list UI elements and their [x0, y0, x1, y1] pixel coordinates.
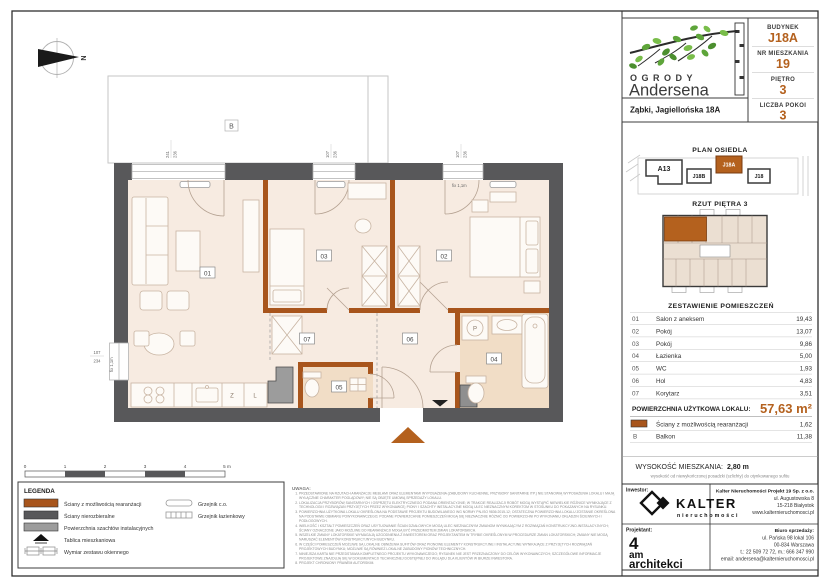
svg-text:5 m: 5 m: [223, 464, 231, 469]
svg-text:2: 2: [104, 464, 107, 469]
height-note: wysokość od niewykończonej posadzki (szl…: [651, 474, 790, 479]
svg-text:Łazienka: Łazienka: [656, 353, 682, 360]
svg-text:fix 1,1m: fix 1,1m: [452, 183, 467, 188]
svg-text:107: 107: [94, 350, 102, 355]
legend-swatch-structural: [24, 511, 58, 519]
svg-text:www.kalternieruchomosci.pl: www.kalternieruchomosci.pl: [752, 510, 814, 516]
total-area-label: POWIERZCHNIA UŻYTKOWA LOKALU:: [632, 404, 750, 413]
desk: [348, 183, 386, 199]
legend-ladder-radiator-icon: [166, 512, 192, 518]
svg-text:Powierzchnia szachtów instalac: Powierzchnia szachtów instalacyjnych: [64, 526, 154, 532]
svg-text:Pokój: Pokój: [656, 341, 672, 348]
double-bed: [470, 217, 540, 277]
floor-overview-highlighted-unit: [665, 217, 707, 241]
svg-text:Balkon: Balkon: [656, 434, 676, 441]
svg-text:0: 0: [24, 464, 27, 469]
svg-text:236: 236: [333, 150, 338, 158]
svg-text:Tablica mieszkaniowa: Tablica mieszkaniowa: [64, 538, 115, 544]
legend: LEGENDA Ściany z możliwością rearanżacji…: [18, 482, 284, 568]
stove-burner-icon: [144, 387, 152, 395]
svg-text:236: 236: [463, 150, 468, 158]
desk-chair: [355, 219, 371, 233]
svg-text:WC: WC: [656, 366, 667, 373]
washer-label: P: [473, 327, 477, 333]
svg-text:05: 05: [632, 366, 640, 373]
svg-text:04: 04: [632, 353, 640, 360]
bathroom-sink: [492, 316, 522, 334]
svg-text:J18: J18: [755, 174, 764, 180]
floor-overview-title: RZUT PIĘTRA 3: [692, 201, 748, 208]
note-item: POWIERZCHNIA UŻYTKOWA LOKALU OKREŚLONA N…: [299, 511, 618, 524]
svg-text:3,51: 3,51: [800, 390, 813, 397]
sales-office-label: Biuro sprzedaży:: [775, 528, 815, 534]
svg-text:J18B: J18B: [693, 174, 706, 180]
svg-text:19,43: 19,43: [796, 316, 812, 323]
svg-text:B: B: [633, 434, 637, 441]
svg-text:06: 06: [632, 378, 640, 385]
svg-text:1: 1: [64, 464, 67, 469]
birch-trunk-icon: [735, 23, 744, 95]
building-value: J18A: [768, 31, 798, 45]
svg-text:t.: 22 509 72 72, m.: 666 347: t.: 22 509 72 72, m.: 666 347 990: [740, 550, 814, 556]
investor-name: KALTER: [676, 496, 737, 511]
wardrobe: [398, 246, 420, 306]
coffee-table: [176, 231, 200, 271]
svg-text:fix 1,1m: fix 1,1m: [109, 357, 114, 372]
svg-text:Wymiar zestawu okiennego: Wymiar zestawu okiennego: [64, 550, 129, 556]
svg-text:ul. Augustowska 8: ul. Augustowska 8: [774, 496, 815, 502]
investor-label: Inwestor:: [626, 488, 649, 494]
dresser: [490, 192, 516, 202]
note-item: PRZEDSTAWIONE NA RZUTACH ARANŻACJE MEBLA…: [299, 492, 618, 501]
svg-text:236: 236: [173, 150, 178, 158]
svg-text:234: 234: [94, 359, 102, 364]
room-label-03: 03: [320, 254, 328, 261]
svg-text:Ściany nierozbieralne: Ściany nierozbieralne: [64, 512, 115, 520]
svg-text:15-218 Białystok: 15-218 Białystok: [777, 503, 814, 509]
svg-text:4: 4: [184, 464, 187, 469]
svg-text:Ściany z możliwością rearanżac: Ściany z możliwością rearanżacji: [656, 420, 748, 429]
svg-text:107: 107: [325, 150, 330, 158]
svg-text:Pokój: Pokój: [656, 328, 672, 335]
svg-text:02: 02: [632, 328, 640, 335]
svg-text:4,83: 4,83: [800, 378, 813, 385]
bathtub: [522, 314, 548, 388]
small-sink: [350, 378, 366, 391]
room-label-01: 01: [204, 271, 212, 278]
svg-text:architekci: architekci: [629, 559, 683, 571]
svg-text:Grzejnik c.o.: Grzejnik c.o.: [198, 502, 227, 508]
svg-text:01: 01: [632, 316, 640, 323]
room-label-07: 07: [303, 337, 311, 344]
floor-overview-core: [700, 245, 730, 257]
designer-label: Projektant:: [626, 528, 652, 534]
svg-text:email: andersena@kalternieruch: email: andersena@kalternieruchomosci.pl: [721, 557, 814, 563]
floor-plan: 01 02 03 04 05 06 07 Z L P 241 236 107: [90, 140, 563, 443]
investor-sub: nieruchomości: [677, 513, 739, 519]
project-address: Ząbki, Jagiellońska 18A: [630, 106, 720, 115]
tv-unit: [243, 200, 259, 272]
site-plan-title: PLAN OSIEDLA: [692, 147, 747, 154]
rooms-count-value: 3: [780, 109, 787, 123]
nightstand: [472, 200, 488, 212]
header-box: OGRODY Andersena Ząbki, Jagiellońska 18A…: [622, 18, 818, 123]
total-area-value: 57,63 m²: [760, 401, 813, 416]
legend-swatch-rearrangeable: [24, 499, 58, 507]
note-item: WIELKOŚĆ I KSZTAŁT POMIESZCZEŃ ORAZ USYT…: [299, 524, 618, 533]
dining-chair: [134, 331, 149, 346]
wardrobe: [362, 246, 387, 306]
armchair: [140, 291, 162, 310]
svg-text:Korytarz: Korytarz: [656, 390, 679, 397]
svg-text:11,38: 11,38: [797, 434, 813, 441]
dishwasher-label: Z: [230, 394, 234, 400]
apartment-number-value: 19: [776, 57, 790, 71]
kitchen-counter: [131, 383, 267, 407]
svg-text:00-834 Warszawa: 00-834 Warszawa: [774, 543, 814, 549]
dining-chair: [180, 331, 195, 346]
svg-text:241: 241: [165, 150, 170, 158]
armchair: [167, 291, 189, 310]
note-item: NINIEJSZA KARTA NIE PRZEDSTAWIA KOMPLETN…: [299, 552, 618, 561]
height-label: WYSOKOŚĆ MIESZKANIA:: [635, 462, 723, 471]
svg-text:J18A: J18A: [723, 163, 736, 169]
room-label-02: 02: [440, 254, 448, 261]
room-label-05: 05: [335, 385, 343, 392]
svg-text:Salon z aneksem: Salon z aneksem: [656, 316, 704, 323]
contact-box: Inwestor: KALTER nieruchomości Projektan…: [622, 484, 818, 571]
compass-north-label: N: [79, 55, 86, 60]
brand-line2: Andersena: [629, 82, 710, 100]
svg-text:Hol: Hol: [656, 378, 665, 385]
svg-text:Grzejnik łazienkowy: Grzejnik łazienkowy: [198, 514, 245, 520]
company-name: Kalter Nieruchomości Projekt 19 Sp. z o.…: [716, 489, 815, 495]
legend-radiator-icon: [166, 500, 192, 506]
svg-text:07: 07: [632, 390, 640, 397]
svg-text:9,86: 9,86: [800, 341, 813, 348]
svg-text:ul. Pańska 98 lokal 106: ul. Pańska 98 lokal 106: [762, 536, 814, 542]
room-label-06: 06: [406, 337, 414, 344]
svg-text:13,07: 13,07: [796, 328, 812, 335]
disclaimer-notes: UWAGA: PRZEDSTAWIONE NA RZUTACH ARANŻACJ…: [292, 486, 618, 570]
svg-text:107: 107: [455, 150, 460, 158]
legend-swatch-shaft: [24, 523, 58, 531]
note-item: LOKALIZACJA PRZYBORÓW SANITARNYCH I OSPR…: [299, 501, 618, 510]
kitchen-sink: [196, 388, 218, 402]
svg-text:5,00: 5,00: [800, 353, 813, 360]
single-bed: [270, 229, 304, 305]
rooms-table-title: ZESTAWIENIE POMIESZCZEŃ: [668, 301, 774, 310]
sofa: [132, 197, 168, 285]
svg-text:3: 3: [144, 464, 147, 469]
svg-text:A13: A13: [658, 166, 671, 173]
room-label-04: 04: [490, 357, 498, 364]
height-value: 2,80 m: [727, 464, 749, 471]
svg-text:03: 03: [632, 341, 640, 348]
floor-value: 3: [780, 83, 787, 97]
floorplan-sheet: N B: [0, 0, 830, 587]
notes-title: UWAGA:: [292, 486, 618, 491]
svg-text:Ściany z możliwością rearanżac: Ściany z możliwością rearanżacji: [64, 500, 141, 508]
hall-wardrobe: [272, 316, 302, 354]
svg-text:1,62: 1,62: [800, 422, 813, 429]
note-item: PROJEKT CHRONIONY PRAWEM AUTORSKIM.: [299, 562, 618, 566]
rearrangeable-swatch: [631, 420, 647, 427]
balcony: B: [108, 76, 388, 163]
svg-text:1,93: 1,93: [800, 366, 813, 373]
note-item: W CZĘŚCI POMIESZCZEŃ MOŻLIWE SĄ LOKALNE …: [299, 543, 618, 552]
note-item: WSZELKIE ZMIANY LOKATORSKIE WYMAGAJĄ UZG…: [299, 534, 618, 543]
legend-title: LEGENDA: [24, 488, 55, 495]
nightstand: [524, 281, 540, 293]
balcony-label: B: [229, 124, 234, 131]
